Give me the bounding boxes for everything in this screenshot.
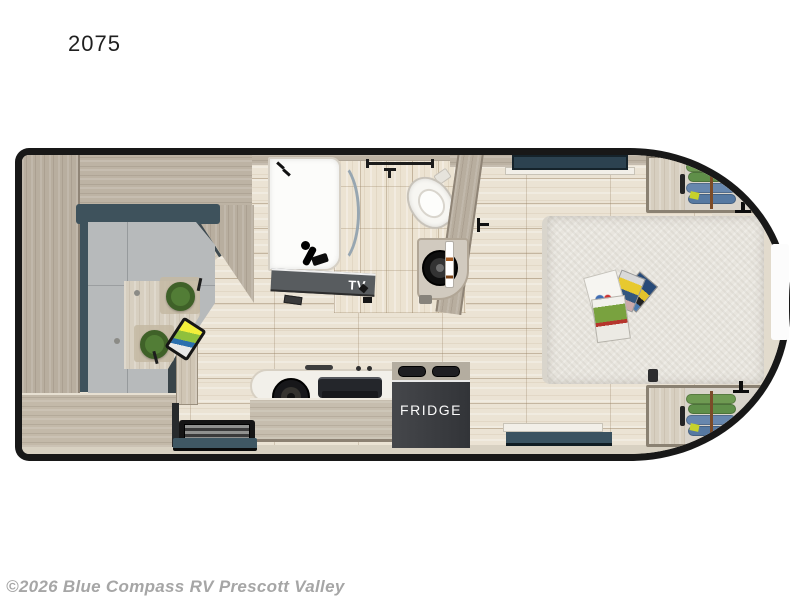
sofa-platform — [22, 393, 178, 447]
stool — [166, 282, 195, 311]
bed — [542, 216, 764, 384]
tv-panel: TV — [270, 268, 375, 296]
fridge: FRIDGE — [392, 380, 470, 448]
wardrobe-top — [646, 155, 772, 213]
stove-knob — [356, 366, 361, 371]
fridge-vent-slot — [432, 366, 460, 377]
towel-bar-icon — [431, 159, 434, 168]
stove-knob — [367, 366, 372, 371]
floorplan-image: TV FRIDGE — [15, 148, 790, 461]
copyright-watermark: ©2026 Blue Compass RV Prescott Valley — [6, 577, 345, 597]
shower-glass-door — [310, 159, 360, 267]
clothes-rod — [710, 159, 713, 209]
sofa-backrest-left — [80, 224, 89, 392]
window-sill — [503, 423, 603, 432]
model-number: 2075 — [68, 31, 121, 57]
table-knob — [134, 290, 140, 296]
vanity-sink-drain — [436, 264, 444, 272]
table-knob — [114, 338, 120, 344]
tv-label: TV — [271, 270, 376, 294]
sofa-backrest-top — [76, 204, 220, 224]
window-bottom — [506, 432, 612, 446]
hook-icon — [739, 381, 743, 390]
door-hinge-icon — [480, 223, 489, 226]
wardrobe-bottom — [646, 385, 772, 447]
fridge-label: FRIDGE — [392, 382, 470, 418]
kitchen-faucet — [305, 365, 333, 370]
door-latch-icon — [363, 297, 372, 303]
towel-hook-icon — [388, 171, 391, 178]
hook-icon — [741, 202, 745, 211]
page: { "title": "2075", "floorplan": { "label… — [0, 0, 800, 600]
front-window — [771, 244, 789, 340]
entry-threshold — [173, 438, 257, 451]
hook-icon — [733, 390, 749, 393]
towel-bar-icon — [368, 162, 434, 165]
kitchen-cabinet-front — [250, 398, 394, 442]
vanity-foot — [419, 295, 432, 304]
clothes-rod — [710, 391, 713, 441]
cabinet-vent — [648, 369, 658, 382]
window-top — [512, 155, 628, 170]
vanity-faucet — [445, 241, 454, 288]
tv-mount — [284, 295, 303, 305]
fridge-vent-slot — [398, 366, 426, 377]
towel-bar-icon — [366, 159, 369, 168]
magazine — [591, 295, 631, 343]
